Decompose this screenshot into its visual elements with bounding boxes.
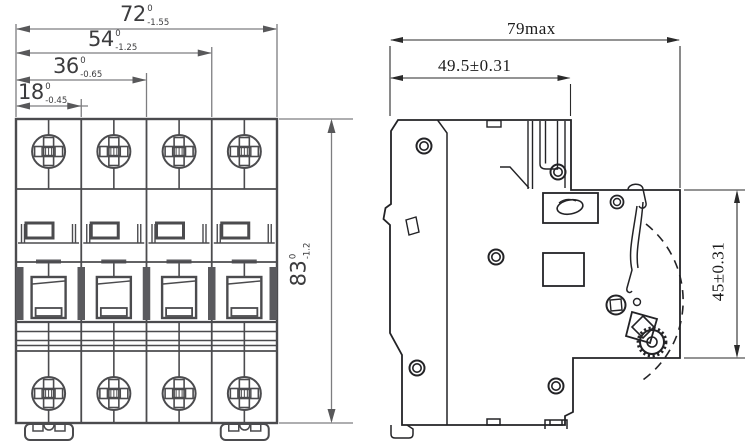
tolerance-lower: -0.65 xyxy=(80,71,102,80)
dim-value: 72 xyxy=(120,4,146,24)
dim-height-83: 83 0-1.2 xyxy=(288,243,311,287)
side-body-outline xyxy=(384,120,681,425)
rivet xyxy=(410,361,425,376)
tolerance-lower: -1.25 xyxy=(115,44,137,53)
front-view xyxy=(16,119,277,440)
dim-value: 83 xyxy=(288,261,308,287)
square-hole-screw xyxy=(607,296,626,315)
dim-width-79max: 79max xyxy=(507,20,556,37)
pole-3 xyxy=(149,119,210,423)
latch-lever xyxy=(627,184,646,292)
drawing-canvas xyxy=(0,0,750,445)
tolerance-upper: 0 xyxy=(80,57,102,66)
dim-value: 36 xyxy=(53,56,79,76)
tolerance-upper: 0 xyxy=(115,30,137,39)
tolerance-upper: 0 xyxy=(45,83,67,92)
pole-1 xyxy=(18,119,79,423)
toggle-side-bars xyxy=(16,267,277,320)
rivet xyxy=(549,379,564,394)
dim-width-49-5: 49.5±0.31 xyxy=(438,57,511,74)
tolerance-lower: -0.45 xyxy=(45,97,67,106)
dim-width-54: 54 0-1.25 xyxy=(88,29,137,52)
rivet xyxy=(489,250,504,265)
rivet xyxy=(417,139,432,154)
dim-value: 54 xyxy=(88,29,114,49)
dim-width-18: 18 0-0.45 xyxy=(18,82,67,105)
pole-2 xyxy=(83,119,144,423)
dim-width-72: 72 0-1.55 xyxy=(120,4,169,27)
tolerance-lower: -1.2 xyxy=(303,243,312,260)
pole-4 xyxy=(214,119,275,423)
mounting-foot xyxy=(25,424,269,440)
dim-width-36: 36 0-0.65 xyxy=(53,56,102,79)
tolerance-lower: -1.55 xyxy=(147,19,169,28)
side-dimension-arrows xyxy=(390,37,740,358)
tolerance-upper: 0 xyxy=(289,243,298,260)
dim-value: 18 xyxy=(18,82,44,102)
side-toggle-handle xyxy=(543,193,598,223)
dim-height-45: 45±0.31 xyxy=(709,242,726,302)
technical-drawing: 72 0-1.55 54 0-1.25 36 0-0.65 18 0-0.45 … xyxy=(0,0,750,445)
din-foot xyxy=(391,419,567,438)
side-view xyxy=(384,120,684,438)
tolerance-upper: 0 xyxy=(147,5,169,14)
gear-knob xyxy=(626,312,666,356)
rivet xyxy=(611,196,624,209)
